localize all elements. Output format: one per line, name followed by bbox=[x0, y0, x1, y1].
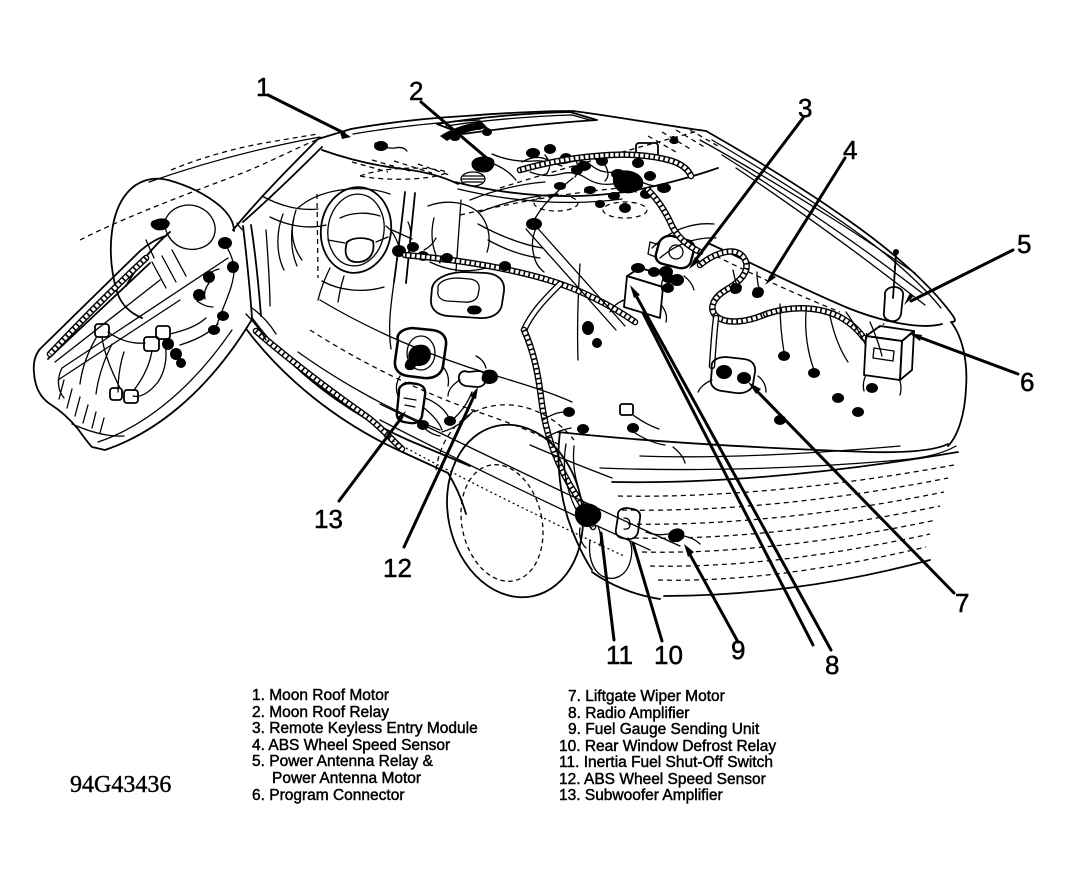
svg-text:11: 11 bbox=[606, 640, 633, 670]
svg-text:7: 7 bbox=[955, 588, 969, 618]
svg-text:Power Antenna Motor: Power Antenna Motor bbox=[272, 770, 421, 787]
svg-text:6. Program Connector: 6. Program Connector bbox=[252, 787, 405, 804]
svg-text:5: 5 bbox=[1017, 229, 1031, 259]
svg-text:8: 8 bbox=[825, 650, 839, 680]
svg-text:10: 10 bbox=[654, 640, 683, 670]
svg-text:3. Remote Keyless Entry Module: 3. Remote Keyless Entry Module bbox=[252, 720, 478, 737]
svg-text:13: 13 bbox=[314, 504, 343, 534]
svg-text:6: 6 bbox=[1020, 367, 1034, 397]
svg-text:5. Power Antenna Relay &: 5. Power Antenna Relay & bbox=[252, 753, 434, 770]
svg-text:12: 12 bbox=[383, 553, 412, 583]
svg-text:10. Rear Window Defrost Relay: 10. Rear Window Defrost Relay bbox=[559, 738, 776, 755]
svg-text:9: 9 bbox=[731, 635, 745, 665]
svg-text:2: 2 bbox=[409, 76, 423, 106]
svg-text:7. Liftgate Wiper Motor: 7. Liftgate Wiper Motor bbox=[568, 688, 725, 705]
svg-text:13. Subwoofer Amplifier: 13. Subwoofer Amplifier bbox=[559, 787, 723, 804]
svg-text:4: 4 bbox=[843, 135, 857, 165]
svg-text:12. ABS Wheel Speed Sensor: 12. ABS Wheel Speed Sensor bbox=[559, 771, 766, 788]
svg-text:4. ABS Wheel Speed Sensor: 4. ABS Wheel Speed Sensor bbox=[252, 737, 450, 754]
svg-text:2. Moon Roof Relay: 2. Moon Roof Relay bbox=[252, 704, 389, 721]
svg-text:9. Fuel Gauge Sending Unit: 9. Fuel Gauge Sending Unit bbox=[568, 721, 760, 738]
svg-text:11. Inertia Fuel Shut-Off Swit: 11. Inertia Fuel Shut-Off Switch bbox=[559, 754, 773, 771]
svg-text:8. Radio Amplifier: 8. Radio Amplifier bbox=[568, 705, 689, 722]
svg-text:1: 1 bbox=[256, 72, 270, 102]
svg-text:3: 3 bbox=[798, 93, 812, 123]
svg-text:94G43436: 94G43436 bbox=[70, 772, 171, 798]
svg-text:1. Moon Roof Motor: 1. Moon Roof Motor bbox=[252, 687, 389, 704]
